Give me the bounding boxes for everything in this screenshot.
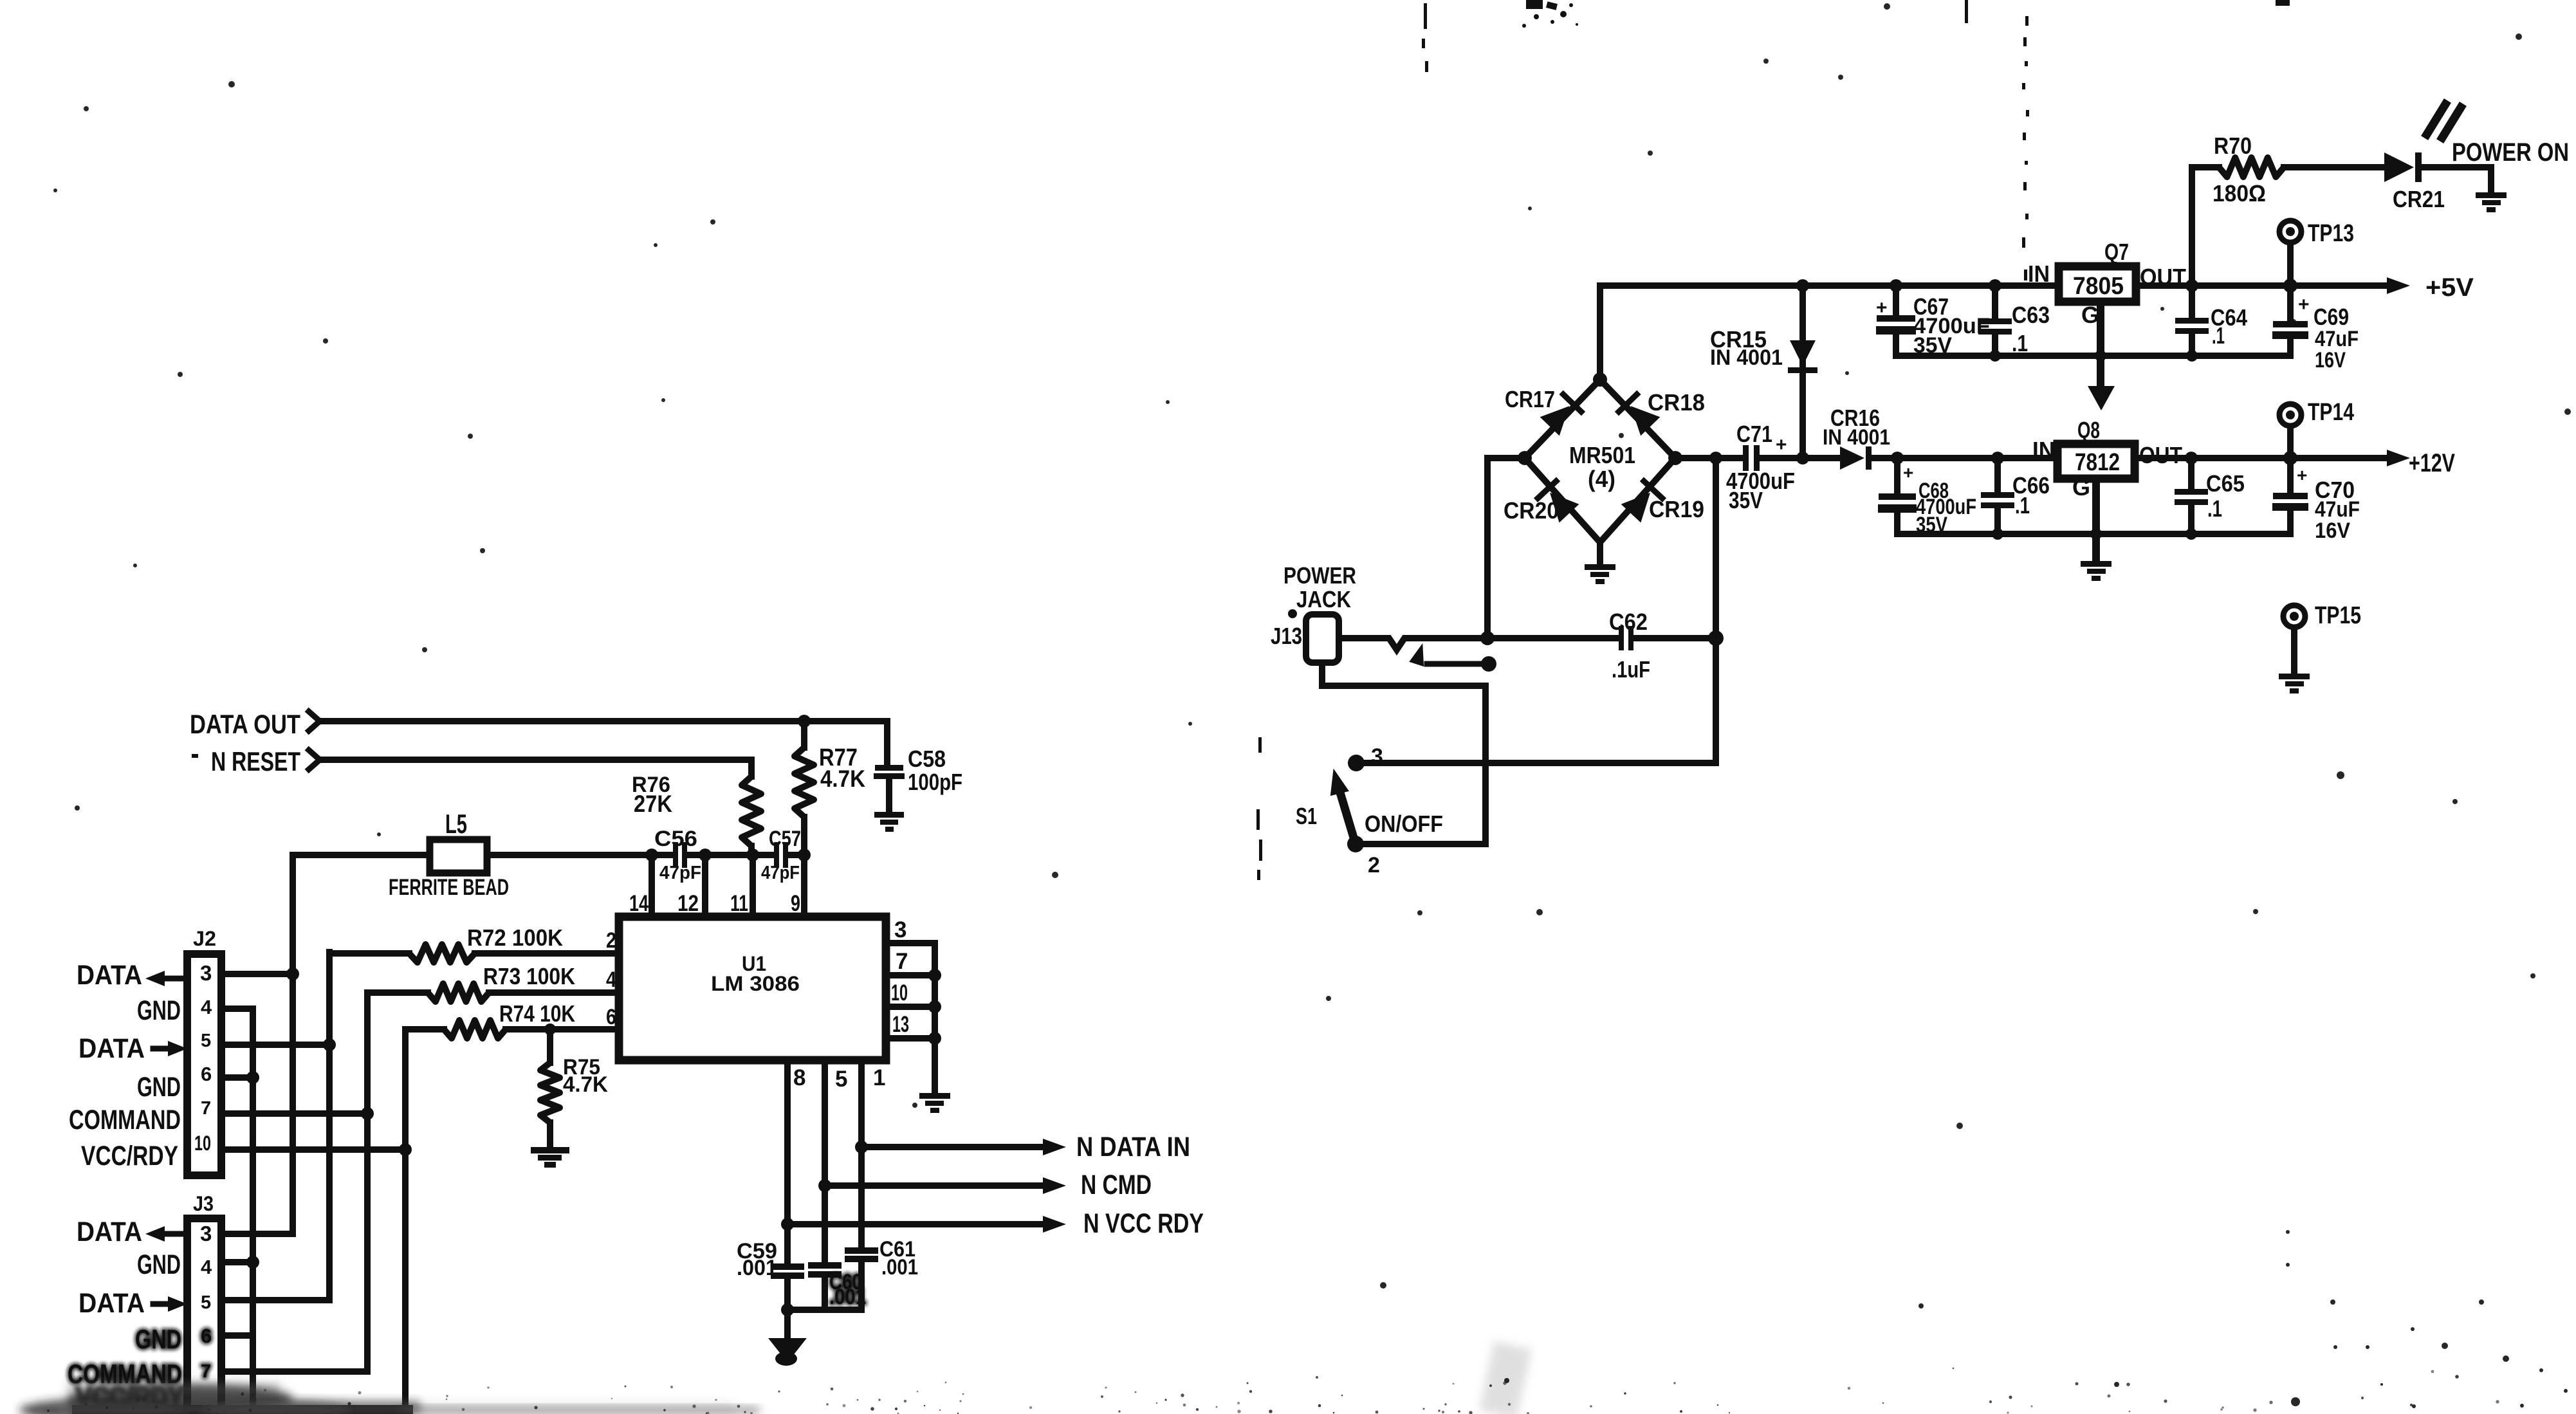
svg-text:R73 100K: R73 100K [483, 963, 575, 989]
svg-text:10: 10 [194, 1132, 211, 1155]
svg-text:N CMD: N CMD [1081, 1170, 1152, 1200]
svg-text:+: + [2297, 465, 2307, 485]
svg-text:J3: J3 [193, 1192, 214, 1215]
svg-text:4: 4 [201, 996, 212, 1018]
svg-text:DATA: DATA [78, 1033, 145, 1064]
svg-text:MR501: MR501 [1569, 442, 1635, 468]
svg-text:IN: IN [2032, 437, 2055, 463]
svg-text:CR18: CR18 [1648, 389, 1705, 416]
svg-text:4: 4 [201, 1256, 212, 1278]
svg-text:G: G [2081, 302, 2099, 328]
svg-text:4.7K: 4.7K [820, 766, 865, 792]
svg-text:N RESET: N RESET [211, 746, 300, 776]
svg-text:7: 7 [201, 1098, 211, 1119]
svg-text:C65: C65 [2206, 470, 2245, 497]
svg-text:7812: 7812 [2075, 449, 2120, 476]
svg-text:Q8: Q8 [2077, 417, 2100, 443]
svg-text:.1uF: .1uF [1612, 656, 1650, 683]
svg-text:C62: C62 [1609, 609, 1648, 635]
svg-text:47pF: 47pF [761, 863, 800, 883]
svg-text:35V: 35V [1729, 487, 1763, 513]
svg-text:R74 10K: R74 10K [499, 1000, 575, 1027]
svg-text:TP13: TP13 [2308, 220, 2354, 247]
svg-text:6: 6 [606, 1005, 616, 1029]
svg-text:FERRITE BEAD: FERRITE BEAD [389, 875, 509, 900]
svg-text:.001: .001 [881, 1255, 918, 1280]
svg-text:3: 3 [1371, 744, 1383, 769]
svg-text:IN: IN [2028, 261, 2050, 287]
svg-text:10: 10 [891, 980, 908, 1005]
svg-text:C58: C58 [908, 746, 946, 772]
svg-text:+: + [1876, 297, 1888, 318]
svg-text:POWER: POWER [1283, 562, 1356, 589]
svg-text:1: 1 [873, 1065, 885, 1090]
svg-text:VCC/RDY: VCC/RDY [81, 1141, 178, 1171]
svg-text:R70: R70 [2214, 133, 2252, 159]
svg-text:6: 6 [201, 1325, 212, 1347]
svg-text:Q7: Q7 [2104, 239, 2129, 265]
svg-text:2: 2 [1368, 853, 1380, 877]
svg-text:DATA: DATA [78, 1288, 145, 1319]
svg-text:ON/OFF: ON/OFF [1365, 811, 1443, 837]
svg-text:27K: 27K [634, 791, 672, 817]
svg-text:IN 4001: IN 4001 [1823, 425, 1890, 450]
svg-text:5: 5 [201, 1292, 211, 1313]
svg-text:N VCC RDY: N VCC RDY [1083, 1208, 1204, 1239]
svg-text:3: 3 [894, 917, 906, 942]
svg-text:DATA: DATA [77, 960, 142, 991]
svg-text:DATA OUT: DATA OUT [190, 709, 300, 739]
svg-text:+12V: +12V [2409, 449, 2455, 477]
svg-text:4: 4 [606, 968, 616, 992]
svg-text:2: 2 [606, 928, 616, 953]
svg-text:CR19: CR19 [1649, 496, 1704, 522]
svg-text:G: G [2072, 474, 2090, 500]
svg-text:5: 5 [835, 1067, 847, 1092]
svg-text:CR17: CR17 [1505, 386, 1555, 412]
svg-text:6: 6 [201, 1063, 212, 1085]
svg-text:C63: C63 [2012, 302, 2050, 328]
svg-text:DATA: DATA [77, 1217, 142, 1247]
svg-text:+: + [1776, 434, 1787, 455]
svg-text:(4): (4) [1588, 466, 1615, 492]
svg-text:TP15: TP15 [2315, 602, 2361, 629]
svg-text:N DATA IN: N DATA IN [1076, 1132, 1190, 1162]
svg-text:C69: C69 [2314, 304, 2349, 330]
svg-text:C56: C56 [654, 827, 697, 851]
svg-text:9: 9 [791, 891, 800, 916]
svg-text:13: 13 [892, 1012, 909, 1037]
svg-text:3: 3 [200, 961, 212, 985]
svg-text:J13: J13 [1271, 623, 1302, 649]
svg-text:16V: 16V [2315, 348, 2346, 372]
svg-text:100pF: 100pF [908, 769, 962, 795]
svg-text:14: 14 [629, 891, 649, 916]
svg-text:16V: 16V [2315, 519, 2350, 543]
svg-text:7: 7 [896, 949, 908, 974]
svg-text:12: 12 [677, 891, 699, 916]
svg-text:8: 8 [793, 1065, 805, 1090]
svg-text:7805: 7805 [2073, 273, 2124, 300]
svg-text:COMMAND: COMMAND [69, 1105, 181, 1135]
svg-text:IN 4001: IN 4001 [1710, 345, 1783, 370]
svg-text:7: 7 [201, 1361, 211, 1382]
svg-text:R72 100K: R72 100K [467, 924, 563, 951]
svg-text:S1: S1 [1296, 803, 1317, 829]
svg-text:.001: .001 [737, 1256, 777, 1280]
svg-text:4.7K: 4.7K [563, 1072, 608, 1097]
svg-text:JACK: JACK [1296, 586, 1351, 612]
svg-text:GND: GND [137, 1072, 181, 1103]
svg-text:+: + [1903, 463, 1913, 482]
svg-text:J2: J2 [193, 927, 216, 950]
svg-text:.1: .1 [2207, 495, 2222, 522]
svg-text:C57: C57 [769, 827, 801, 851]
svg-text:11: 11 [730, 891, 748, 916]
svg-text:.1: .1 [2212, 322, 2225, 349]
svg-text:.1: .1 [2015, 492, 2030, 519]
svg-text:5: 5 [201, 1031, 211, 1051]
svg-text:180Ω: 180Ω [2213, 180, 2266, 207]
svg-text:CR20: CR20 [1504, 497, 1559, 524]
svg-text:GND: GND [137, 995, 181, 1026]
svg-text:GND: GND [137, 1249, 181, 1280]
svg-text:C71: C71 [1736, 421, 1772, 447]
svg-text:CR21: CR21 [2393, 186, 2445, 212]
svg-text:LM 3086: LM 3086 [711, 972, 800, 995]
svg-text:TP14: TP14 [2308, 399, 2354, 426]
svg-text:.1: .1 [2012, 330, 2028, 356]
svg-text:POWER ON: POWER ON [2452, 138, 2569, 167]
svg-text:L5: L5 [445, 809, 467, 839]
svg-text:47pF: 47pF [659, 863, 701, 883]
svg-text:GND: GND [135, 1324, 181, 1354]
svg-text:+5V: +5V [2425, 273, 2474, 302]
svg-text:+: + [2298, 294, 2310, 315]
svg-text:3: 3 [200, 1222, 212, 1245]
